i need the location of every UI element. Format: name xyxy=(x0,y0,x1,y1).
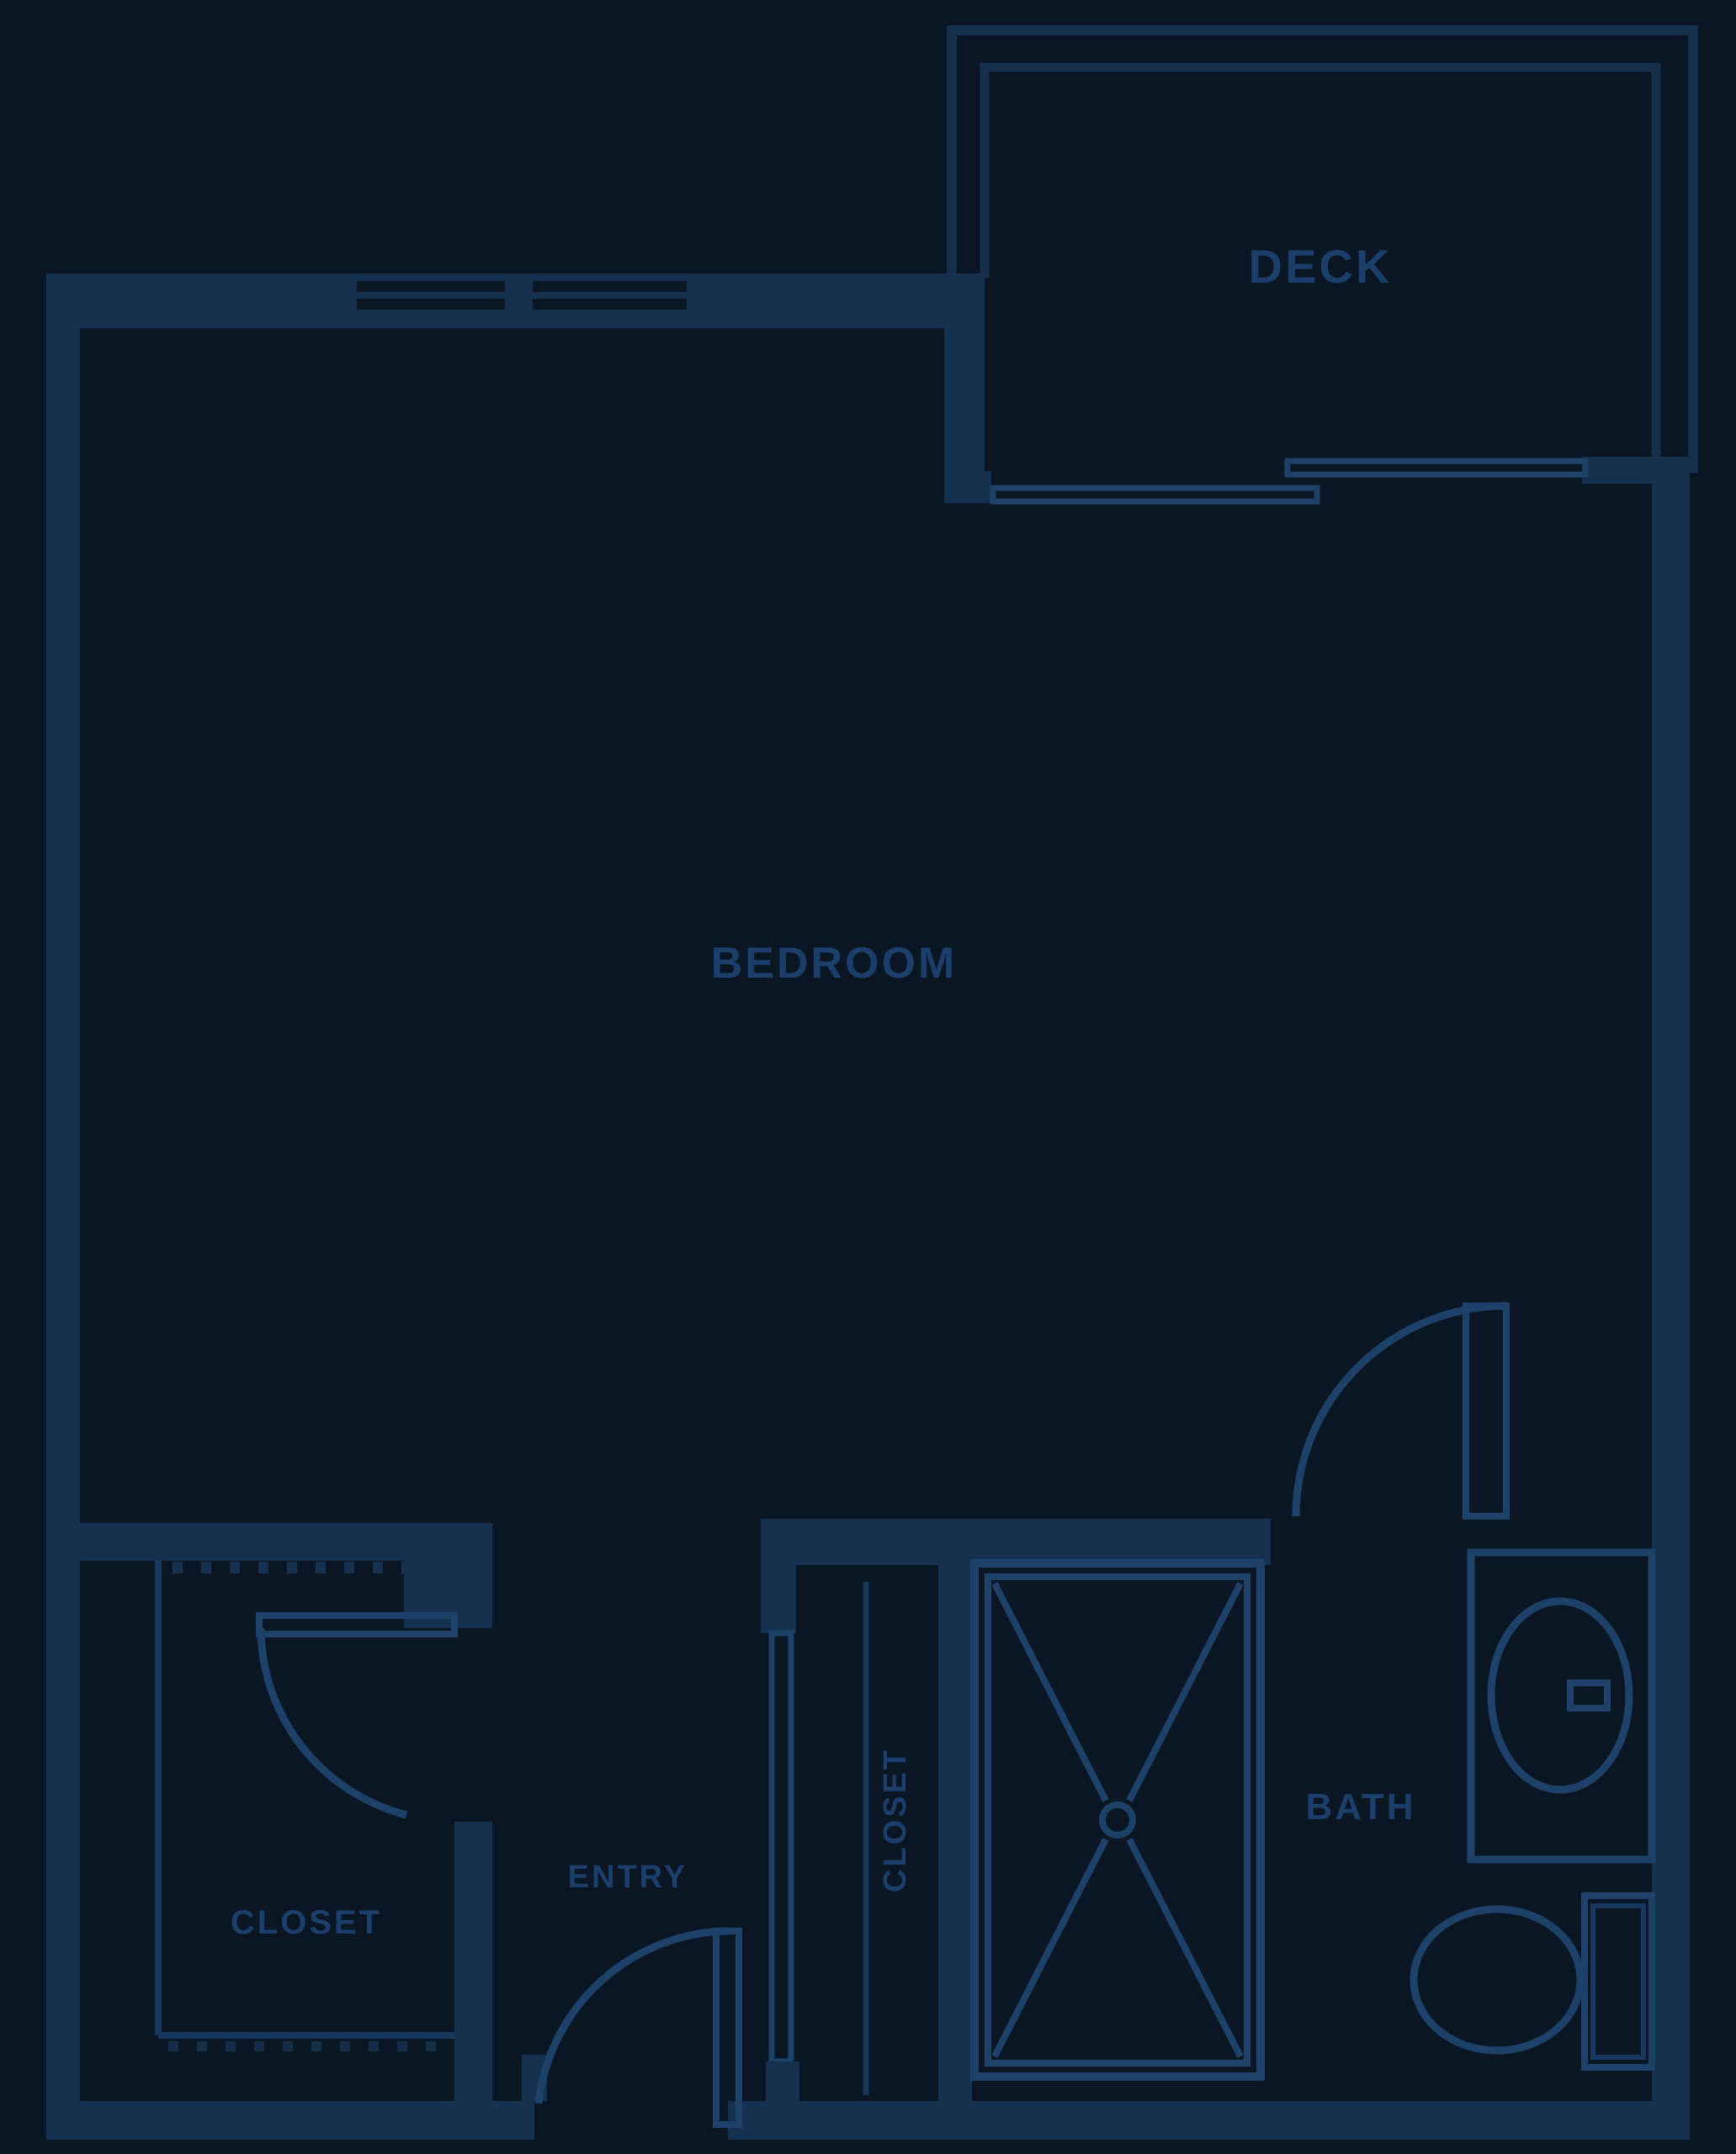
deck-left-wall xyxy=(944,273,985,503)
shower-x-line-1 xyxy=(995,1584,1106,1801)
hall-closet-wall-stub-bottom xyxy=(766,2061,799,2101)
floor-plan-drawing: DECK BEDROOM CLOSET ENTRY CLOSET BATH xyxy=(0,0,1736,2154)
unit-right-wall xyxy=(1652,457,1690,2140)
unit-bottom-wall-left xyxy=(46,2101,534,2140)
entry-door-swing-arc xyxy=(539,1931,728,2104)
shower-x-line-3 xyxy=(995,1839,1106,2056)
closet-door-swing-arc xyxy=(261,1628,406,1815)
shower-x-line-4 xyxy=(1129,1839,1240,2056)
toilet-bowl-icon xyxy=(1414,1909,1580,2051)
bedroom-bath-wall xyxy=(761,1519,1271,1565)
closet-right-wall-lower xyxy=(454,1822,492,2101)
shower-pan-outer xyxy=(974,1563,1261,2077)
hall-closet-right-wall xyxy=(938,1519,972,2101)
bath-door-leaf xyxy=(1466,1306,1506,1516)
deck-label: DECK xyxy=(1249,240,1393,293)
floor-plan-page: DECK BEDROOM CLOSET ENTRY CLOSET BATH xyxy=(0,0,1736,2154)
deck-sliding-door-panel-left xyxy=(993,488,1317,501)
toilet-tank-inner xyxy=(1593,1906,1643,2057)
entry-door-leaf xyxy=(716,1931,739,2125)
sink-faucet-icon xyxy=(1570,1683,1607,1708)
bedroom-window-mullion xyxy=(505,273,533,328)
bedroom-label: BEDROOM xyxy=(711,939,958,988)
closet-right-wall-upper xyxy=(454,1523,492,1628)
bath-label: BATH xyxy=(1306,1786,1416,1828)
hall-closet-wall-stub-top xyxy=(761,1519,796,1633)
closet-label: CLOSET xyxy=(231,1904,382,1941)
unit-bottom-wall-right xyxy=(728,2101,1690,2140)
shower-x-line-2 xyxy=(1129,1584,1240,1801)
deck-left-wall-foot xyxy=(944,471,991,503)
deck-sliding-door-panel-right xyxy=(1287,461,1585,475)
hall-closet-left-wall xyxy=(772,1633,791,2061)
shower-drain-icon xyxy=(1102,1805,1133,1835)
unit-left-wall xyxy=(46,273,80,2140)
bedroom-closet-wall xyxy=(46,1523,492,1561)
entry-label: ENTRY xyxy=(568,1860,687,1895)
bath-door-swing-arc xyxy=(1296,1306,1506,1516)
hall-closet-label: CLOSET xyxy=(878,1748,913,1892)
